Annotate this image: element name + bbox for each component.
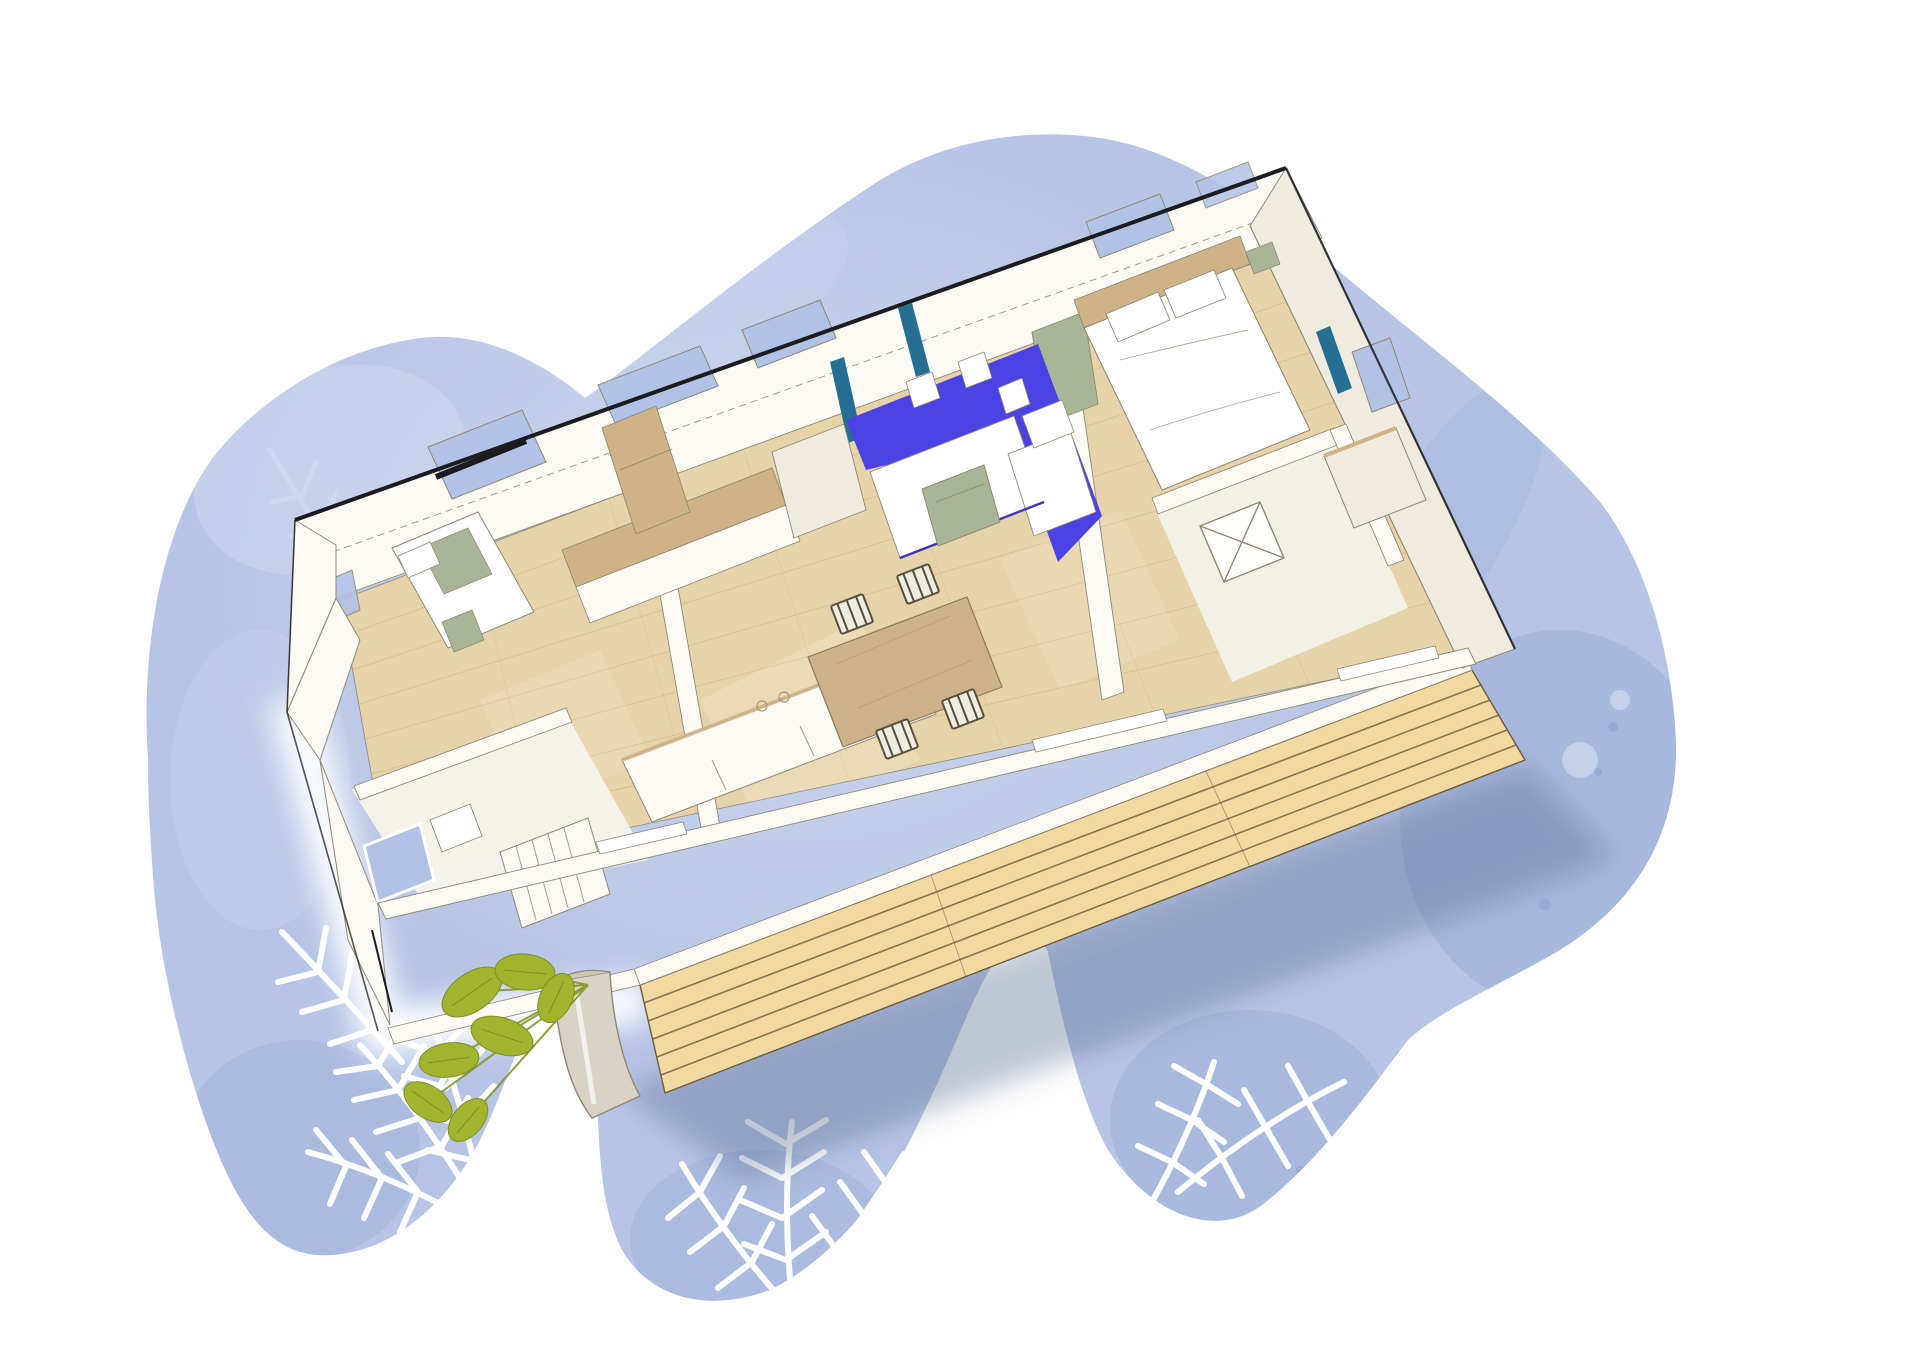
- illustration-canvas: [0, 0, 1920, 1357]
- mobile-home-floorplan-illustration: [0, 0, 1920, 1357]
